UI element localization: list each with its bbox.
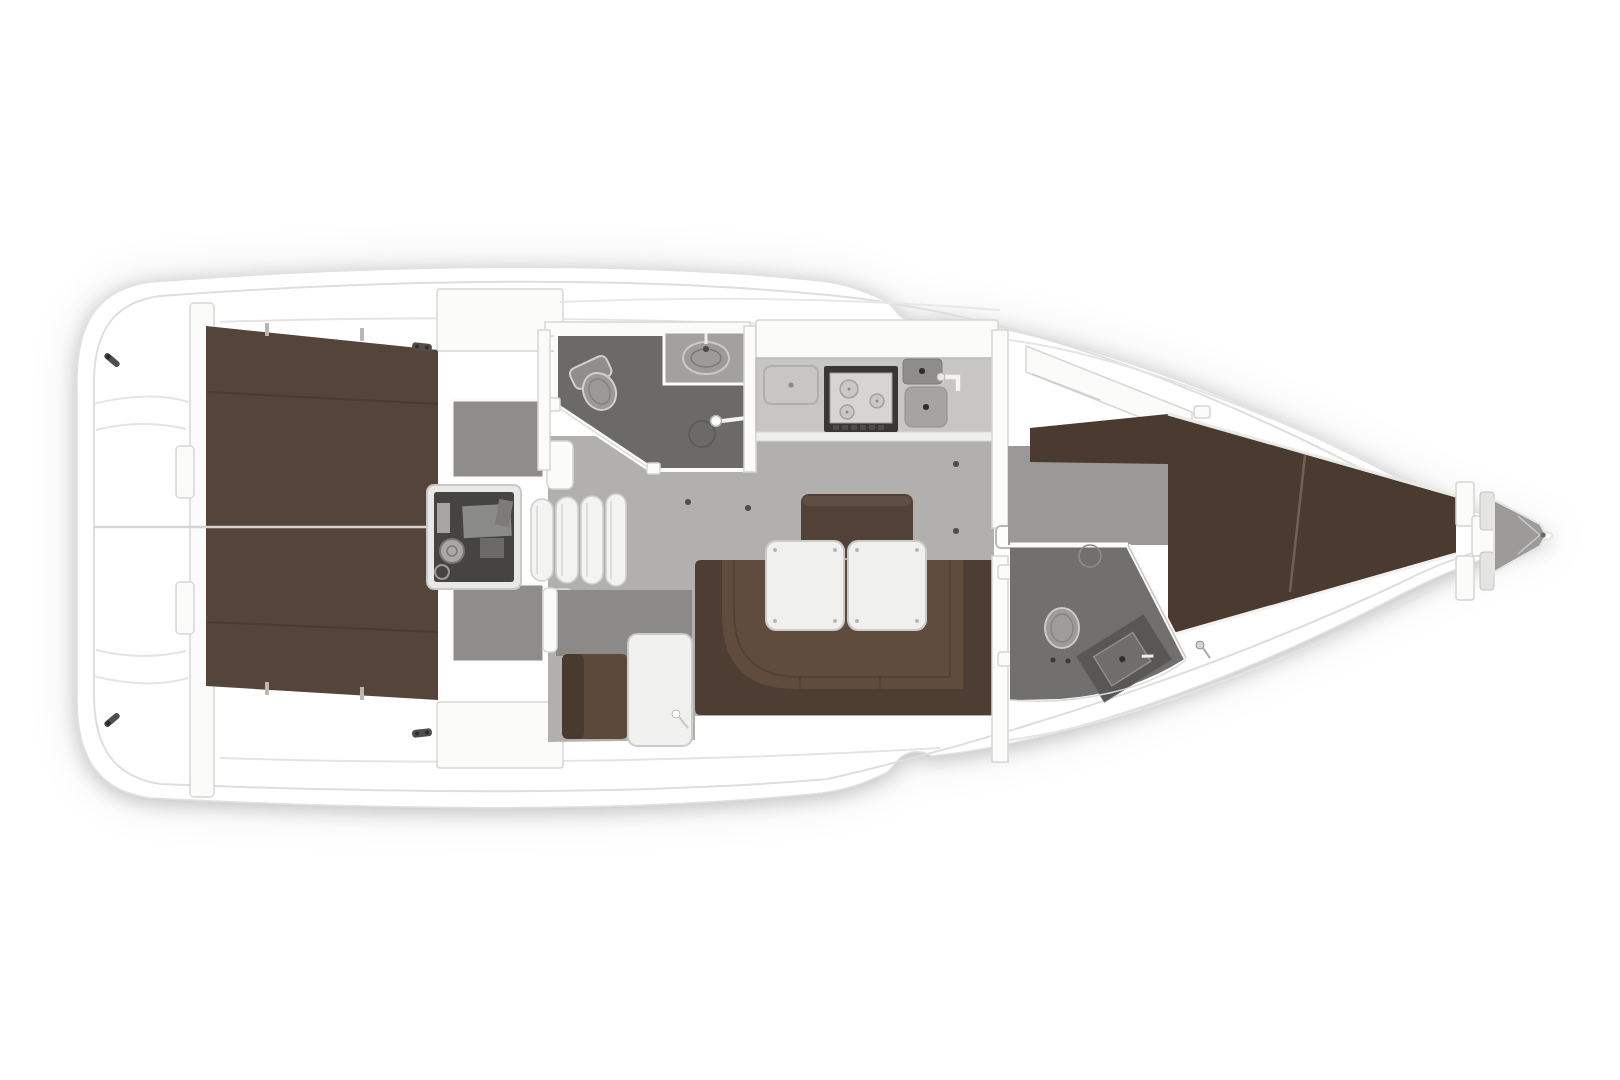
door-hinge-1 <box>998 565 1012 579</box>
floorplan-svg <box>0 0 1620 1080</box>
nav-station <box>543 588 692 746</box>
stove <box>824 366 898 432</box>
companionway-rail-top <box>547 441 573 489</box>
galley <box>756 320 998 441</box>
aft-cabin-footwell-bottom <box>452 584 544 662</box>
backrest-highlight <box>803 496 911 506</box>
chart-table-knob <box>672 710 680 718</box>
step-tread-3 <box>581 496 603 584</box>
transom-step-bottom <box>176 582 194 634</box>
bow-fitting <box>1541 533 1546 538</box>
shower-head <box>711 416 722 427</box>
step-tread-1 <box>531 499 553 581</box>
door-hinge-2 <box>998 652 1012 666</box>
step-tread-2 <box>556 497 578 583</box>
head-left-wall <box>538 330 550 470</box>
head-galley-partition <box>744 326 756 472</box>
aft-cabin-footwell-top <box>452 400 544 478</box>
salon-table-right <box>848 541 926 630</box>
companionway-side-post <box>543 588 557 652</box>
cockpit-locker-bottom <box>437 702 563 768</box>
fridge-lid-handle <box>789 383 794 388</box>
aft-head-drain-dot <box>703 346 709 352</box>
bow-bulkhead-2b <box>1480 552 1494 590</box>
nav-seat-side <box>562 654 584 739</box>
bow-bulkhead-1b <box>1456 556 1474 600</box>
galley-faucet-base <box>937 373 945 381</box>
shelf-end-hook <box>1194 406 1210 418</box>
galley-top-lockers <box>756 320 998 358</box>
galley-counter-edge <box>756 432 998 441</box>
door-post-2 <box>647 463 660 474</box>
sink-drain-1 <box>919 368 925 374</box>
bow-bulkhead-2a <box>1480 492 1494 530</box>
chart-table <box>628 634 692 746</box>
engine-compartment <box>427 485 521 589</box>
boat-floorplan-image <box>0 0 1620 1080</box>
deck-fitting <box>1196 641 1204 649</box>
transom-step-top <box>176 446 194 498</box>
step-tread-4 <box>606 494 626 586</box>
salon-table-left <box>766 541 844 630</box>
bulkhead-top <box>992 330 1008 528</box>
aft-double-berth <box>206 326 438 700</box>
sink-drain-2 <box>923 404 929 410</box>
